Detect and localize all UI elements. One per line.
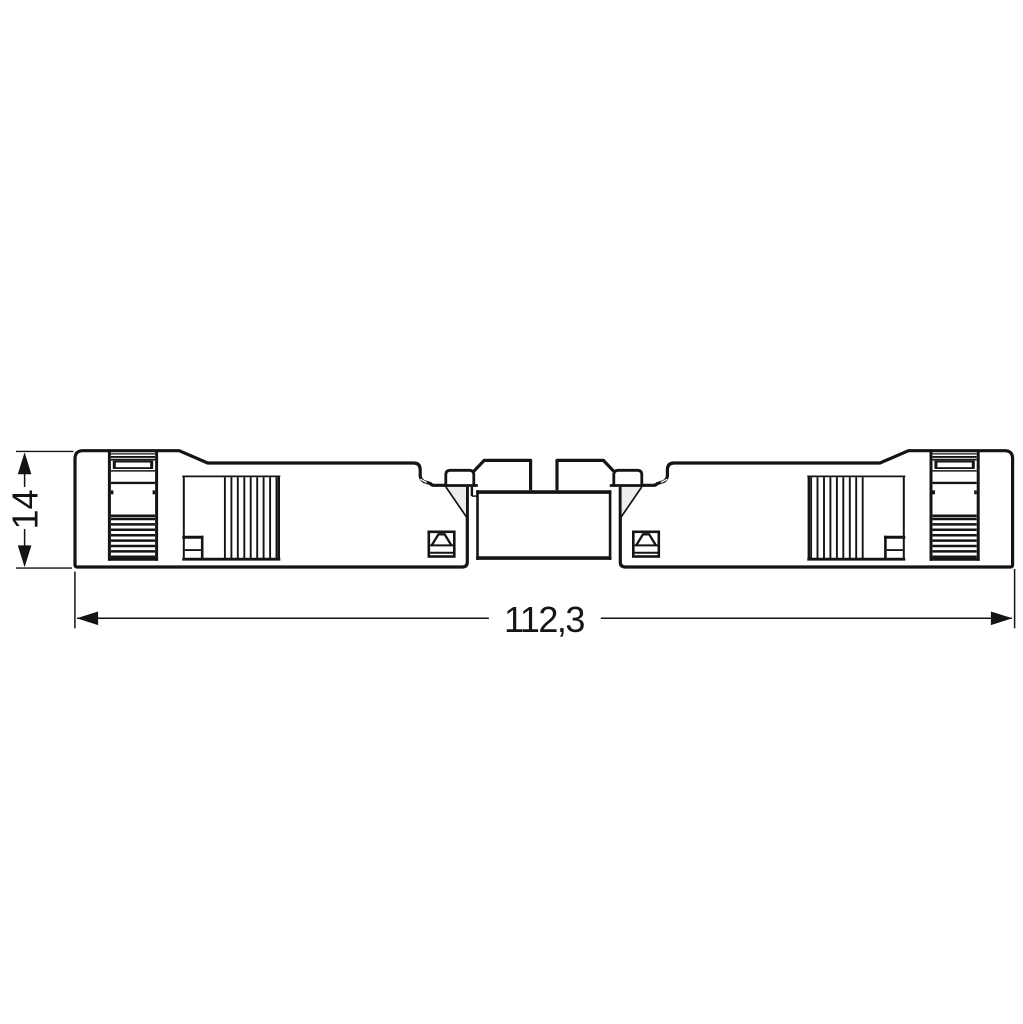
svg-text:112,3: 112,3 [504,599,584,640]
svg-text:14: 14 [5,489,46,529]
